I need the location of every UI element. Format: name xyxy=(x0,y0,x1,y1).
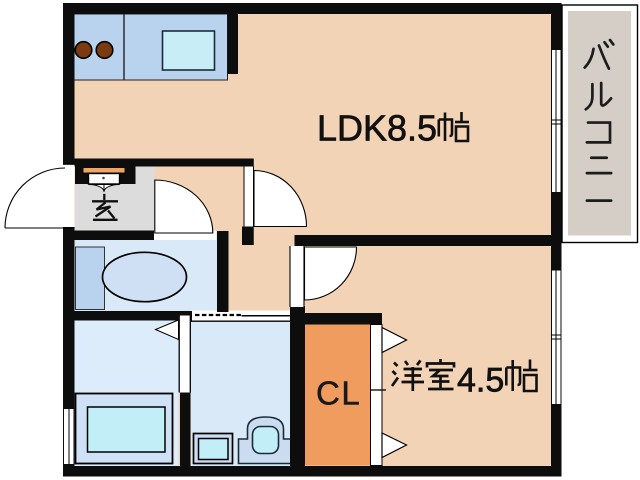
svg-text:CL: CL xyxy=(316,375,361,412)
svg-text:LDK8.5: LDK8.5 xyxy=(317,107,437,148)
svg-text:4.5: 4.5 xyxy=(457,362,504,400)
